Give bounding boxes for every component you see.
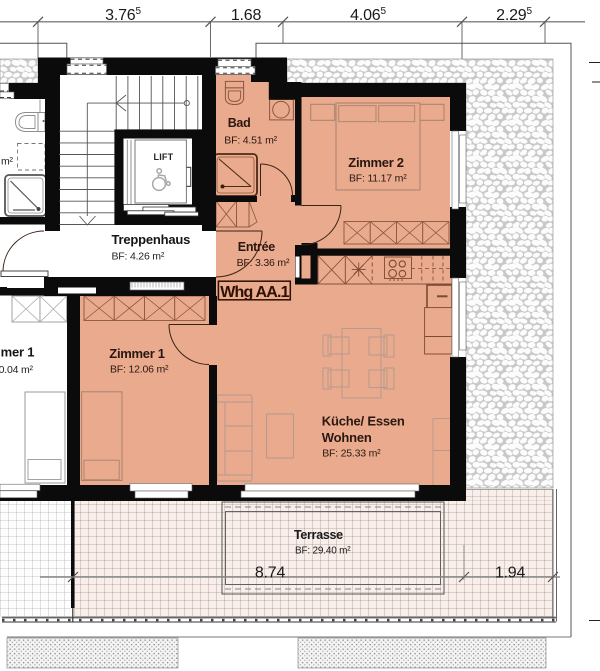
svg-text:8.74: 8.74 <box>255 565 286 582</box>
svg-text:Wohnen: Wohnen <box>322 430 372 445</box>
svg-text:BF: 3.36 m²: BF: 3.36 m² <box>237 257 290 269</box>
svg-text:mmer 1: mmer 1 <box>0 345 34 360</box>
svg-text:BF: 25.33 m²: BF: 25.33 m² <box>322 448 381 460</box>
svg-text:Zimmer 2: Zimmer 2 <box>348 155 403 170</box>
svg-text:Bad: Bad <box>228 116 251 130</box>
svg-text:LIFT: LIFT <box>154 152 174 162</box>
svg-text:Zimmer 1: Zimmer 1 <box>109 346 164 361</box>
svg-text:Treppenhaus: Treppenhaus <box>112 232 191 247</box>
svg-text:BF: 12.06 m²: BF: 12.06 m² <box>110 364 169 376</box>
svg-text:Terrasse: Terrasse <box>294 528 343 542</box>
svg-text:BF: 11.17 m²: BF: 11.17 m² <box>349 173 407 185</box>
svg-text:BF: 4.51 m²: BF: 4.51 m² <box>224 134 277 146</box>
svg-text:BF: 4.26 m²: BF: 4.26 m² <box>112 251 165 263</box>
svg-text:1.68: 1.68 <box>231 7 262 24</box>
svg-text:Küche/ Essen: Küche/ Essen <box>322 413 405 428</box>
svg-text:BF: 29.40 m²: BF: 29.40 m² <box>295 546 351 557</box>
svg-text:0.04 m²: 0.04 m² <box>0 364 33 376</box>
svg-text:Entrée: Entrée <box>238 240 275 254</box>
svg-text:1.94: 1.94 <box>495 565 526 582</box>
svg-text:Whg AA.1: Whg AA.1 <box>220 284 289 301</box>
svg-text:m²: m² <box>1 156 14 168</box>
